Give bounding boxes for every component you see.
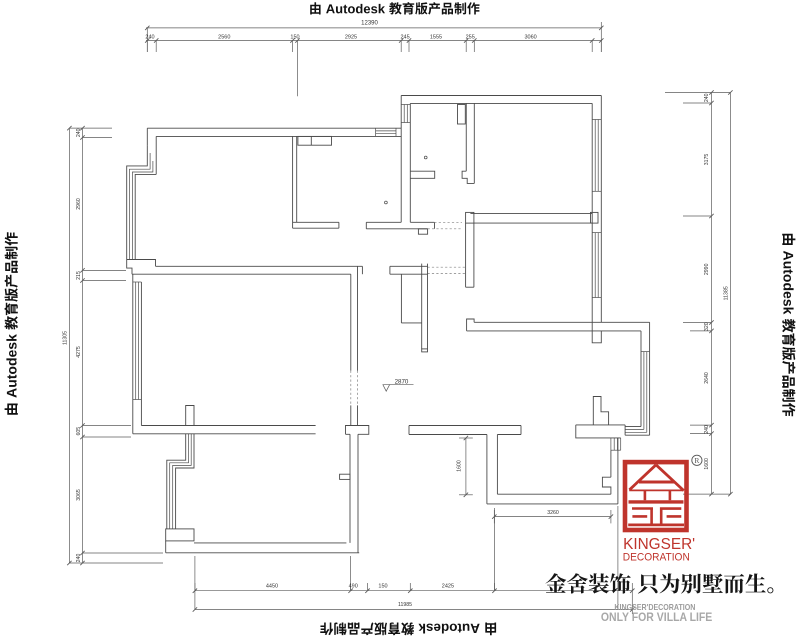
svg-text:2640: 2640 <box>704 372 710 384</box>
svg-text:R: R <box>694 456 699 465</box>
svg-text:2560: 2560 <box>218 34 230 40</box>
svg-text:490: 490 <box>349 584 358 590</box>
svg-text:3260: 3260 <box>547 510 559 516</box>
svg-text:2990: 2990 <box>704 263 710 275</box>
svg-text:1600: 1600 <box>704 458 710 470</box>
svg-text:605: 605 <box>76 427 82 436</box>
svg-text:2960: 2960 <box>76 198 82 210</box>
svg-text:11985: 11985 <box>398 602 412 608</box>
svg-text:DECORATION: DECORATION <box>623 552 690 564</box>
svg-text:240: 240 <box>76 128 82 137</box>
svg-text:240: 240 <box>704 425 710 434</box>
svg-text:245: 245 <box>401 34 410 40</box>
svg-text:1600: 1600 <box>457 460 463 472</box>
svg-text:11305: 11305 <box>62 331 68 345</box>
svg-text:ONLY FOR VILLA LIFE: ONLY FOR VILLA LIFE <box>601 610 712 624</box>
svg-text:2925: 2925 <box>345 34 357 40</box>
svg-text:3065: 3065 <box>76 489 82 501</box>
svg-text:2425: 2425 <box>442 584 454 590</box>
svg-text:215: 215 <box>76 271 82 280</box>
svg-text:255: 255 <box>466 34 475 40</box>
svg-text:4450: 4450 <box>266 584 278 590</box>
svg-text:3060: 3060 <box>524 34 536 40</box>
svg-text:1555: 1555 <box>430 34 442 40</box>
svg-text:11385: 11385 <box>723 286 729 300</box>
svg-text:240: 240 <box>704 93 710 102</box>
svg-text:240: 240 <box>76 554 82 563</box>
svg-text:3175: 3175 <box>704 154 710 166</box>
svg-text:240: 240 <box>145 34 154 40</box>
svg-text:2870: 2870 <box>395 378 409 385</box>
svg-text:320: 320 <box>704 322 710 331</box>
svg-text:150: 150 <box>290 34 299 40</box>
svg-text:4275: 4275 <box>76 346 82 358</box>
svg-text:150: 150 <box>378 584 387 590</box>
svg-text:12390: 12390 <box>361 21 378 27</box>
